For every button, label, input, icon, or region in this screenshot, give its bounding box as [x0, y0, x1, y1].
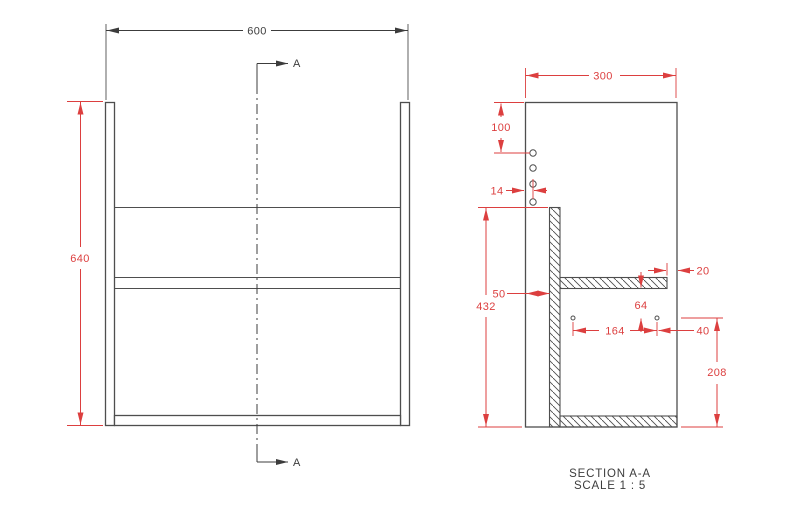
section-caption: SECTION A-A SCALE 1 : 5 — [569, 468, 651, 492]
section-side-panel-outline — [526, 103, 678, 428]
drawing-canvas: A A 600 640 — [0, 0, 800, 513]
mount-hole-rear — [571, 316, 575, 320]
dim-text-100: 100 — [491, 122, 511, 134]
dim-text-14: 14 — [490, 186, 503, 198]
front-right-side-panel — [401, 103, 410, 426]
dim-text-300: 300 — [593, 71, 613, 83]
section-scale: SCALE 1 : 5 — [574, 480, 646, 492]
pin-hole-4 — [530, 199, 536, 205]
mount-hole-front — [655, 316, 659, 320]
dim-text-640: 640 — [70, 253, 90, 265]
section-bottom-shelf — [560, 416, 677, 427]
dim-text-164: 164 — [605, 326, 625, 338]
dim-text-20: 20 — [696, 266, 709, 278]
dim-text-64: 64 — [634, 300, 647, 312]
section-label-top: A — [293, 58, 301, 70]
dim-text-432: 432 — [476, 301, 496, 313]
pin-hole-1 — [530, 150, 536, 156]
dim-text-208: 208 — [707, 367, 727, 379]
section-middle-shelf — [560, 278, 667, 289]
section-label-bottom: A — [293, 457, 301, 469]
section-back-panel — [550, 208, 561, 428]
cad-drawing-sheet: A A 600 640 — [0, 0, 800, 513]
front-left-side-panel — [106, 103, 115, 426]
dim-text-600: 600 — [247, 26, 267, 38]
dim-text-40: 40 — [696, 326, 709, 338]
section-title: SECTION A-A — [569, 468, 651, 480]
dim-text-50: 50 — [492, 289, 505, 301]
pin-hole-2 — [530, 165, 536, 171]
